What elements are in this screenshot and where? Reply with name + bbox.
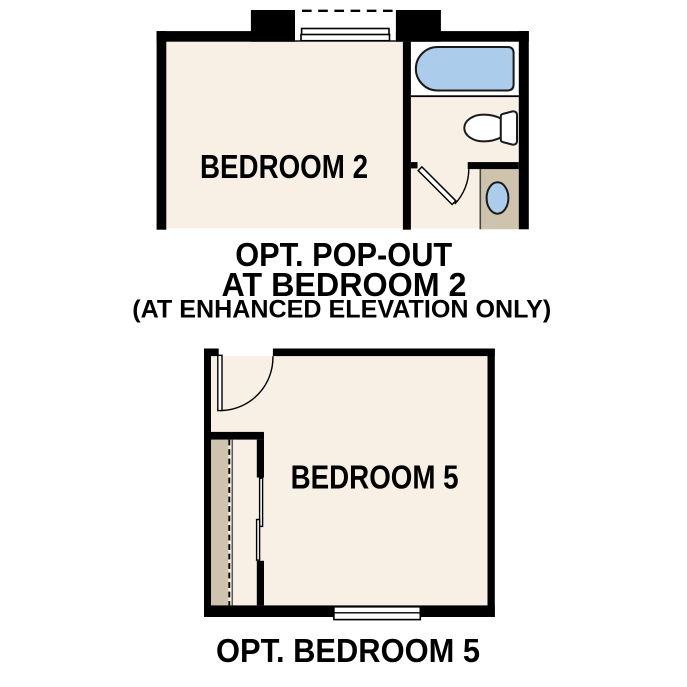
svg-text:(AT ENHANCED ELEVATION ONLY): (AT ENHANCED ELEVATION ONLY) (132, 296, 551, 324)
svg-text:OPT. BEDROOM 5: OPT. BEDROOM 5 (216, 632, 480, 669)
svg-text:BEDROOM 5: BEDROOM 5 (291, 459, 459, 496)
svg-text:BEDROOM 2: BEDROOM 2 (200, 148, 368, 185)
